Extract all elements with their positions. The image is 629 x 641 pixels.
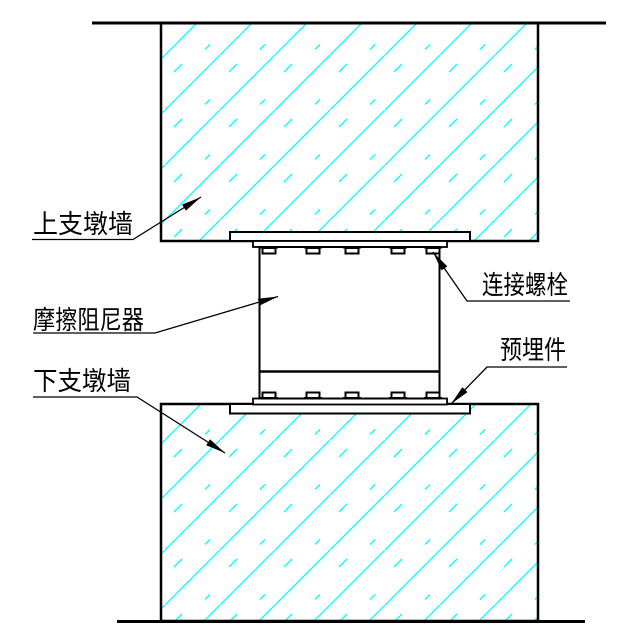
connection-bolt-label: 连接螺栓 [482, 270, 568, 300]
embedded-plate-bottom [230, 404, 470, 414]
bolt [424, 393, 442, 400]
upper-pier-wall [161, 23, 538, 241]
bolt [343, 247, 361, 254]
bolt [304, 247, 322, 254]
cad-diagram: 上支墩墙 摩擦阻尼器 下支墩墙 连接螺栓 预埋件 [0, 0, 629, 641]
drawing-canvas: 上支墩墙 摩擦阻尼器 下支墩墙 连接螺栓 预埋件 [0, 0, 629, 641]
lower-pier-wall [161, 404, 538, 621]
friction-damper-assembly [260, 247, 440, 399]
bolt [260, 247, 278, 254]
lower-wall-label: 下支墩墙 [33, 366, 131, 396]
damper-body [260, 247, 440, 399]
bolt [389, 247, 407, 254]
bolt [343, 393, 361, 400]
embedded-plate-top [230, 232, 470, 241]
friction-damper-label: 摩擦阻尼器 [33, 305, 144, 335]
bolt [260, 393, 278, 400]
bolt [389, 393, 407, 400]
bolt [304, 393, 322, 400]
upper-wall-label: 上支墩墙 [33, 209, 133, 239]
embedded-part-label: 预埋件 [500, 335, 566, 365]
